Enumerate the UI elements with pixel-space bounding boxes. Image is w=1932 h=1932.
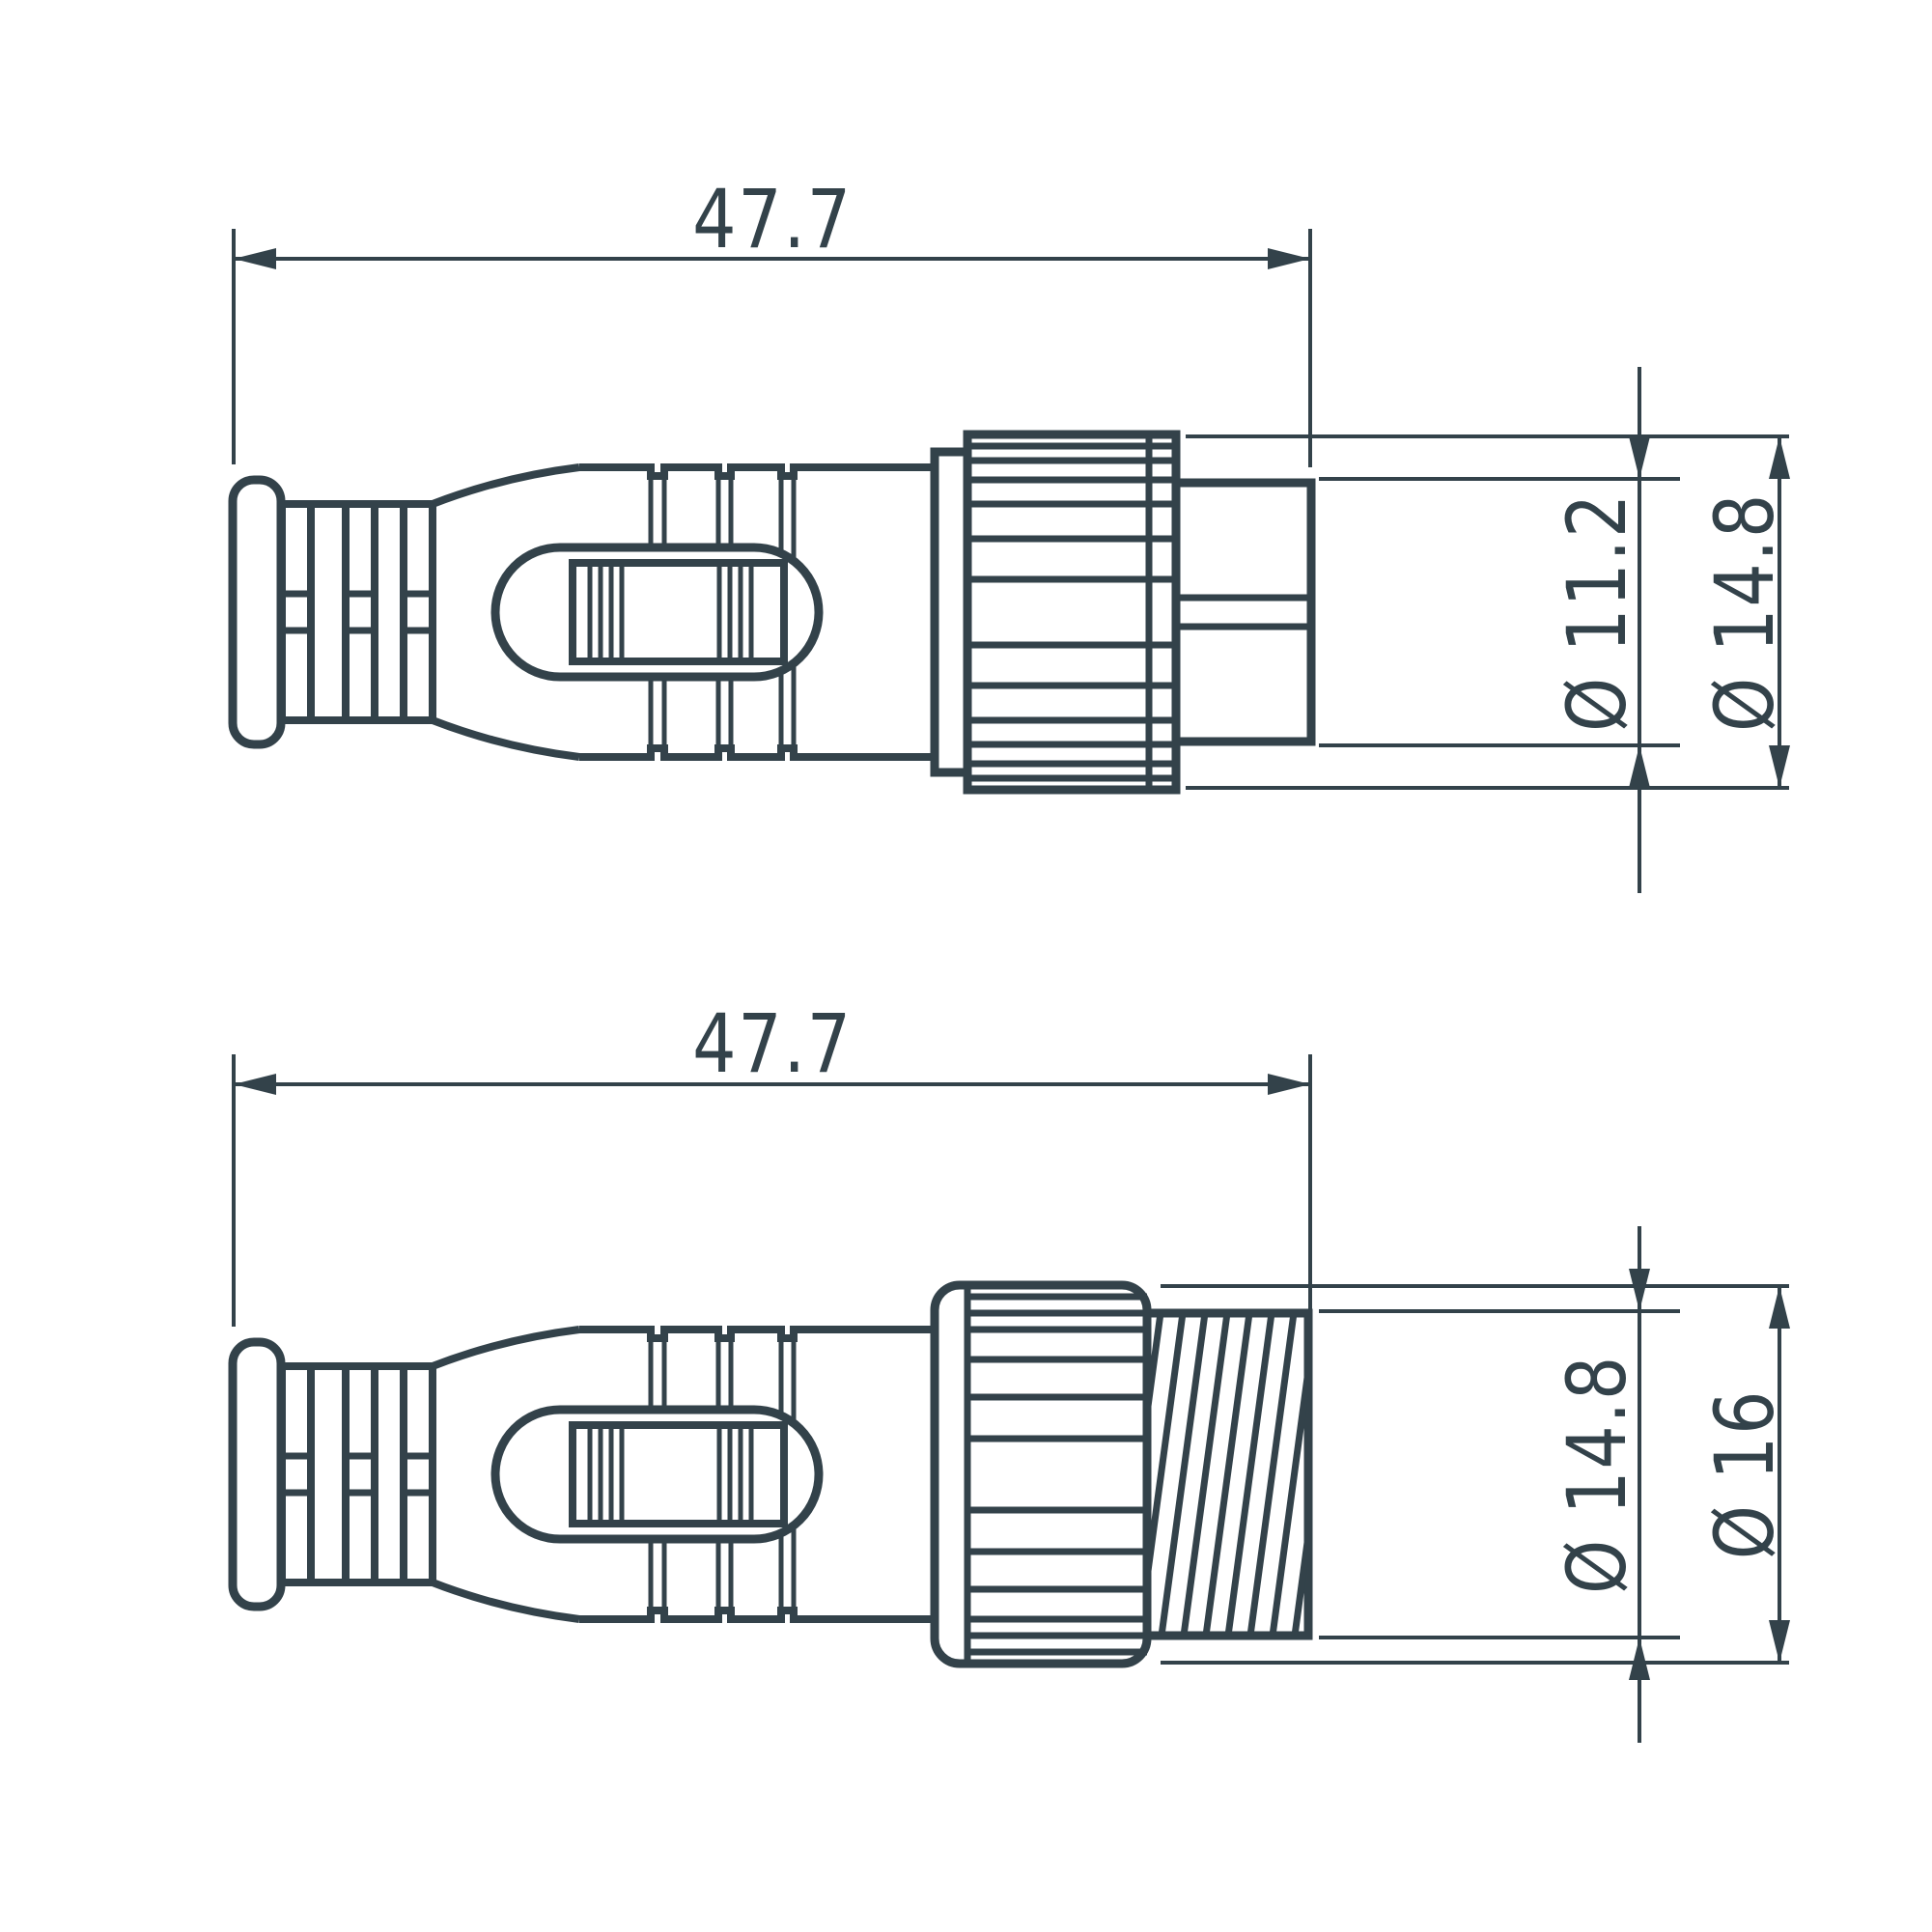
arrowhead-down-icon xyxy=(1769,1620,1790,1663)
flange-step xyxy=(935,452,967,772)
arrowhead-left-icon xyxy=(234,1074,276,1095)
arrowhead-up-icon xyxy=(1629,745,1650,788)
connector-technical-drawing: 47.7 Ø 11.2 Ø 14.8 xyxy=(0,0,1932,1932)
arrowhead-up-icon xyxy=(1769,436,1790,479)
arrowhead-down-icon xyxy=(1629,436,1650,479)
cable-boot-cap xyxy=(233,480,281,744)
top-tip-diameter-label: Ø 11.2 xyxy=(1551,492,1644,732)
arrowhead-up-icon xyxy=(1769,1286,1790,1329)
arrowhead-down-icon xyxy=(1629,1269,1650,1311)
arrowhead-down-icon xyxy=(1769,745,1790,788)
cable-boot-cap xyxy=(233,1342,281,1607)
top-view-connector xyxy=(233,434,1311,790)
arrowhead-right-icon xyxy=(1268,248,1310,269)
knurled-nut xyxy=(967,434,1176,790)
bottom-thread-diameter-label: Ø 14.8 xyxy=(1551,1355,1644,1594)
male-tip-barrel xyxy=(1176,483,1311,742)
arrowhead-right-icon xyxy=(1268,1074,1310,1095)
top-length-label: 47.7 xyxy=(692,173,853,266)
strain-relief-frame xyxy=(282,504,433,720)
top-body-diameter-label: Ø 14.8 xyxy=(1698,492,1792,732)
strain-relief-frame xyxy=(282,1366,433,1582)
bottom-length-label: 47.7 xyxy=(692,997,853,1091)
bottom-nut-diameter-label: Ø 16 xyxy=(1698,1389,1792,1560)
bottom-view-connector xyxy=(233,1285,1338,1664)
arrowhead-left-icon xyxy=(234,248,276,269)
arrowhead-up-icon xyxy=(1629,1638,1650,1680)
technical-drawing-page: 47.7 Ø 11.2 Ø 14.8 xyxy=(0,0,1932,1932)
